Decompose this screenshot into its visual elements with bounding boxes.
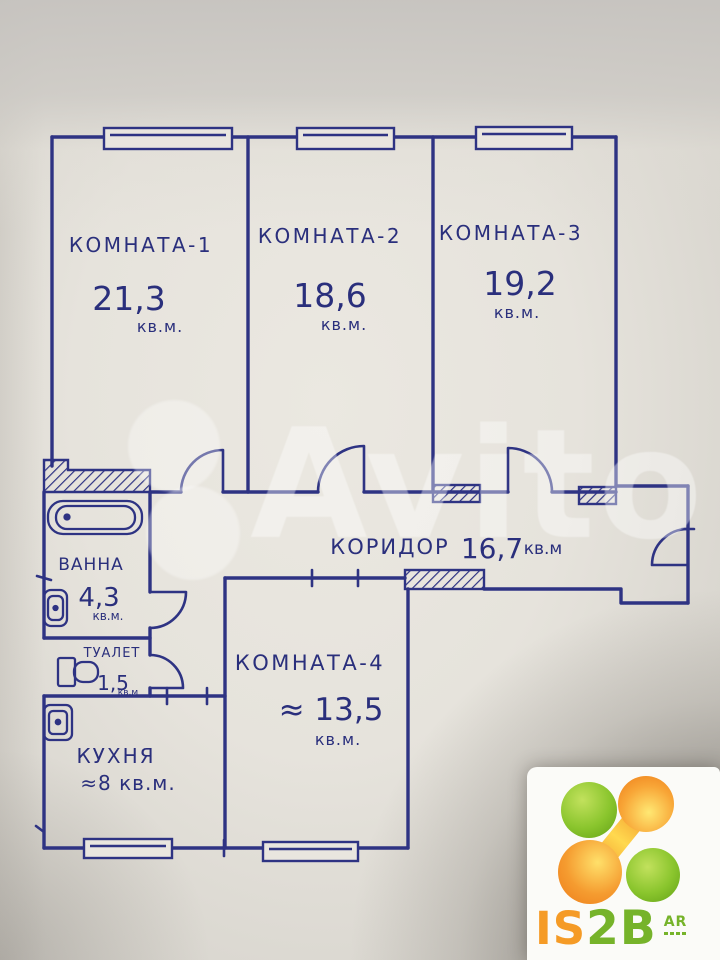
logo-orange-blob-icon bbox=[558, 840, 622, 904]
room1-unit: кв.м. bbox=[137, 317, 183, 336]
room4-unit: кв.м. bbox=[315, 730, 361, 749]
toilet-icon bbox=[58, 658, 98, 686]
room2-unit: кв.м. bbox=[321, 315, 367, 334]
kitchen-area: ≈8 кв.м. bbox=[80, 771, 176, 795]
corridor-area: 16,7 bbox=[461, 532, 523, 565]
hatched-wall-bath-top bbox=[44, 460, 150, 492]
room3-unit: кв.м. bbox=[494, 303, 540, 322]
room2-area: 18,6 bbox=[293, 276, 366, 315]
hatched-wall-corridor-2 bbox=[579, 487, 616, 504]
logo-green-circle-icon bbox=[626, 848, 680, 902]
bath-name: ВАННА bbox=[58, 555, 124, 575]
room4-name: КОМНАТА-4 bbox=[235, 651, 385, 675]
logo-text-2b: 2B bbox=[586, 901, 657, 956]
room4-area: ≈ 13,5 bbox=[279, 692, 384, 728]
bath-unit: кв.м. bbox=[92, 609, 123, 623]
window-room4 bbox=[263, 842, 358, 861]
corridor-unit: кв.м bbox=[524, 539, 563, 559]
kitchen-name: КУХНЯ bbox=[76, 744, 155, 768]
door-room3 bbox=[508, 448, 552, 492]
door-room2 bbox=[318, 446, 364, 492]
kitchen-sink-icon bbox=[44, 705, 72, 740]
room3-name: КОМНАТА-3 bbox=[439, 221, 583, 245]
logo-text-is: IS bbox=[535, 902, 586, 955]
hatched-walls bbox=[44, 460, 616, 589]
door-toilet bbox=[150, 655, 183, 688]
door-bath bbox=[150, 592, 186, 628]
window-room1 bbox=[104, 128, 232, 149]
logo-wordmark: IS2BAR bbox=[535, 901, 687, 956]
logo-badge-ar: AR bbox=[664, 914, 688, 935]
hatched-wall-room4-top bbox=[405, 570, 484, 589]
room-labels: КОМНАТА-1 21,3 кв.м. КОМНАТА-2 18,6 кв.м… bbox=[58, 221, 583, 795]
is2b-logo-card: IS2BAR bbox=[527, 767, 720, 960]
logo-orange-blob-icon bbox=[618, 776, 674, 832]
room1-name: КОМНАТА-1 bbox=[69, 233, 213, 257]
toilet-name: ТУАЛЕТ bbox=[83, 646, 141, 661]
toilet-unit: кв.м bbox=[118, 688, 138, 698]
room1-area: 21,3 bbox=[92, 279, 165, 318]
doors bbox=[150, 446, 688, 688]
door-room1 bbox=[181, 450, 223, 492]
corridor-name: КОРИДОР bbox=[330, 535, 449, 559]
hatched-wall-corridor-1 bbox=[433, 485, 480, 502]
bathtub-icon bbox=[48, 501, 142, 534]
room3-area: 19,2 bbox=[483, 264, 556, 303]
floor-plan-photo: КОМНАТА-1 21,3 кв.м. КОМНАТА-2 18,6 кв.м… bbox=[0, 0, 720, 960]
window-kitchen bbox=[84, 839, 172, 858]
window-room2 bbox=[297, 128, 394, 149]
wall-corridor-bottom bbox=[484, 589, 688, 603]
bath-sink-icon bbox=[44, 590, 67, 626]
door-entrance bbox=[652, 529, 688, 565]
logo-green-circle-icon bbox=[561, 782, 617, 838]
room2-name: КОМНАТА-2 bbox=[258, 224, 402, 248]
window-room3 bbox=[476, 127, 572, 149]
